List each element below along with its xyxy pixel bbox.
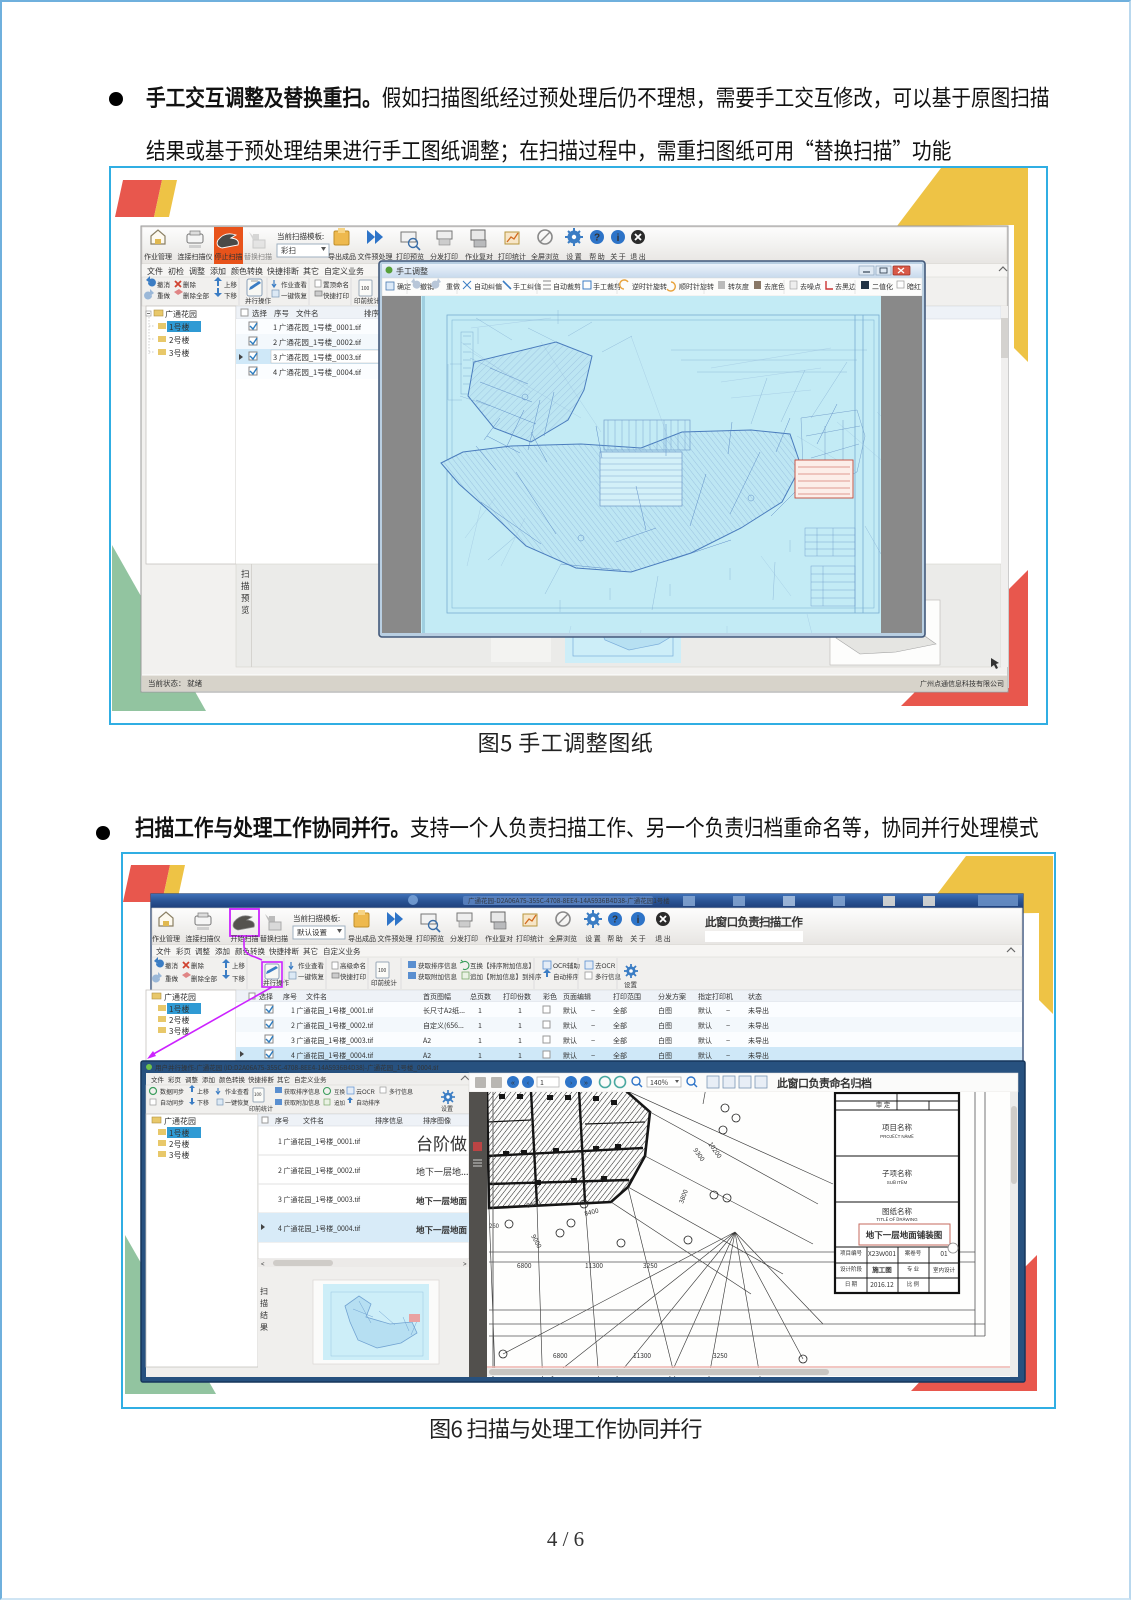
- svg-text:未导出: 未导出: [748, 1006, 769, 1016]
- svg-text:默认: 默认: [563, 1006, 577, 1016]
- svg-text:自动纠偏: 自动纠偏: [474, 282, 502, 292]
- svg-text:1: 1: [540, 1078, 544, 1088]
- svg-text:扫: 扫: [260, 1286, 268, 1297]
- svg-text:当前扫描模板:: 当前扫描模板:: [277, 231, 324, 242]
- svg-text:指定打印机: 指定打印机: [698, 992, 733, 1002]
- svg-text:默认: 默认: [698, 1006, 712, 1016]
- svg-text:A2: A2: [423, 1051, 431, 1061]
- svg-text:2 广通花园_1号楼_0002.tif: 2 广通花园_1号楼_0002.tif: [273, 337, 362, 348]
- svg-text:一键恢复: 一键恢复: [298, 971, 325, 981]
- svg-text:自动同步: 自动同步: [160, 1098, 184, 1107]
- svg-text:导出成品: 导出成品: [348, 934, 376, 944]
- svg-text:其它: 其它: [277, 1074, 290, 1084]
- svg-text:快捷打印: 快捷打印: [323, 290, 349, 300]
- svg-text:导出成品: 导出成品: [328, 252, 356, 262]
- svg-text:1: 1: [478, 1036, 482, 1046]
- svg-text:2号楼: 2号楼: [169, 335, 189, 346]
- svg-text:览: 览: [241, 604, 250, 616]
- svg-text:状态: 状态: [748, 992, 762, 1002]
- svg-text:一键恢复: 一键恢复: [225, 1098, 249, 1107]
- svg-text:果: 果: [260, 1322, 268, 1333]
- svg-text:下移: 下移: [232, 973, 246, 983]
- svg-text:设 置: 设 置: [585, 934, 601, 944]
- svg-text:i: i: [637, 911, 640, 926]
- svg-text:日 期: 日 期: [845, 1280, 858, 1288]
- svg-text:其它: 其它: [303, 946, 318, 957]
- svg-text:3250: 3250: [713, 1350, 728, 1360]
- svg-text:印前统计: 印前统计: [354, 295, 381, 305]
- svg-text:调整: 调整: [189, 266, 205, 277]
- svg-text:连接扫描仪: 连接扫描仪: [178, 252, 213, 262]
- svg-text:长尺寸A2纸...: 长尺寸A2纸...: [423, 1006, 465, 1016]
- svg-text:~: ~: [591, 1006, 595, 1016]
- svg-text:文件名: 文件名: [296, 308, 319, 319]
- svg-text:作业查看: 作业查看: [225, 1087, 249, 1096]
- svg-text:地下一层地面: 地下一层地面: [416, 1224, 468, 1236]
- svg-text:案卷号: 案卷号: [905, 1249, 922, 1257]
- svg-text:项目编号: 项目编号: [840, 1249, 863, 1257]
- svg-text:替换扫描: 替换扫描: [244, 252, 272, 262]
- svg-text:全部: 全部: [613, 1006, 627, 1016]
- svg-text:选择: 选择: [252, 308, 267, 319]
- svg-text:6800: 6800: [517, 1260, 532, 1270]
- svg-text:广州点通信息科技有限公司: 广州点通信息科技有限公司: [920, 679, 1004, 689]
- svg-text:此窗口负责命名归档: 此窗口负责命名归档: [777, 1075, 872, 1091]
- svg-text:确定: 确定: [397, 282, 411, 292]
- svg-text:6800: 6800: [553, 1350, 568, 1360]
- svg-text:11300: 11300: [585, 1260, 603, 1270]
- svg-text:3号楼: 3号楼: [169, 348, 189, 359]
- svg-text:子项名称: 子项名称: [882, 1168, 912, 1179]
- svg-text:上移: 上移: [224, 279, 238, 289]
- svg-text:设置: 设置: [624, 979, 638, 989]
- svg-text:广通花园: 广通花园: [165, 309, 197, 320]
- svg-text:未导出: 未导出: [748, 1051, 769, 1061]
- svg-text:描: 描: [241, 580, 250, 592]
- svg-text:数据同步: 数据同步: [160, 1087, 184, 1096]
- svg-text:施工图: 施工图: [872, 1264, 892, 1274]
- svg-text:文件: 文件: [151, 1074, 165, 1084]
- svg-text:获取附加信息: 获取附加信息: [418, 971, 458, 981]
- svg-text:默认: 默认: [563, 1051, 577, 1061]
- svg-text:重做: 重做: [165, 973, 179, 983]
- svg-text:全部: 全部: [613, 1051, 627, 1061]
- svg-text:重做: 重做: [157, 290, 171, 300]
- svg-text:4 广通花园_1号楼_0004.tif: 4 广通花园_1号楼_0004.tif: [273, 367, 362, 378]
- svg-text:序号: 序号: [283, 992, 297, 1002]
- svg-text:添加: 添加: [215, 946, 230, 957]
- svg-text:用户并行操作-广通花园 (ID:D2A06A75-355C-: 用户并行操作-广通花园 (ID:D2A06A75-355C-4708-8EE4-…: [155, 1062, 438, 1072]
- svg-text:自定义(656...: 自定义(656...: [423, 1021, 464, 1031]
- svg-text:100: 100: [378, 967, 387, 974]
- svg-text:打印份数: 打印份数: [503, 992, 531, 1002]
- svg-text:颜色转换: 颜色转换: [219, 1074, 246, 1084]
- svg-text:未导出: 未导出: [748, 1021, 769, 1031]
- svg-text:~: ~: [591, 1036, 595, 1046]
- svg-text:退 出: 退 出: [655, 934, 671, 944]
- svg-text:100: 100: [254, 1092, 262, 1098]
- svg-text:快捷打印: 快捷打印: [340, 971, 366, 981]
- svg-text:项目名称: 项目名称: [882, 1122, 912, 1133]
- svg-text:页面编辑: 页面编辑: [563, 992, 591, 1002]
- svg-text:文件名: 文件名: [303, 1116, 324, 1126]
- svg-text:互换: 互换: [334, 1088, 346, 1096]
- svg-text:彩页: 彩页: [176, 946, 191, 957]
- svg-text:?: ?: [594, 229, 600, 244]
- svg-text:广通花园: 广通花园: [164, 992, 196, 1003]
- svg-text:高级命名: 高级命名: [340, 960, 366, 970]
- svg-text:顺时针旋转: 顺时针旋转: [679, 282, 714, 292]
- svg-text:停止扫描: 停止扫描: [215, 252, 243, 262]
- svg-text:3 广通花园_1号楼_0003.tif: 3 广通花园_1号楼_0003.tif: [291, 1036, 373, 1046]
- svg-text:地下一层地面: 地下一层地面: [416, 1195, 468, 1207]
- svg-text:1 广通花园_1号楼_0001.tif: 1 广通花园_1号楼_0001.tif: [278, 1137, 360, 1147]
- svg-text:~: ~: [591, 1051, 595, 1061]
- svg-text:结: 结: [260, 1310, 268, 1321]
- svg-text:云OCR: 云OCR: [356, 1087, 375, 1096]
- svg-text:自动排序: 自动排序: [553, 971, 580, 981]
- svg-text:作业管理: 作业管理: [152, 934, 180, 944]
- svg-text:设计阶段: 设计阶段: [840, 1265, 863, 1273]
- svg-text:默认: 默认: [698, 1051, 712, 1061]
- svg-text:互换【排序附加信息】: 互换【排序附加信息】: [470, 960, 535, 970]
- svg-text:自定义业务: 自定义业务: [324, 266, 364, 277]
- svg-text:逆时针旋转: 逆时针旋转: [632, 282, 667, 292]
- svg-text:260: 260: [489, 1221, 500, 1230]
- svg-text:»: »: [584, 1078, 588, 1088]
- svg-text:~: ~: [726, 1051, 730, 1061]
- svg-text:追加【附加信息】到排序: 追加【附加信息】到排序: [470, 971, 542, 981]
- svg-text:彩扫: 彩扫: [281, 245, 296, 256]
- svg-text:X23W001: X23W001: [868, 1248, 896, 1258]
- svg-text:颜色转换: 颜色转换: [231, 266, 263, 277]
- svg-text:删除全部: 删除全部: [191, 973, 218, 983]
- svg-text:4 广通花园_1号楼_0004.tif: 4 广通花园_1号楼_0004.tif: [278, 1224, 360, 1234]
- svg-text:1 广通花园_1号楼_0001.tif: 1 广通花园_1号楼_0001.tif: [291, 1006, 373, 1016]
- svg-text:上移: 上移: [232, 960, 246, 970]
- svg-text:1号楼: 1号楼: [169, 1004, 189, 1015]
- svg-text:首页图幅: 首页图幅: [423, 992, 451, 1002]
- svg-text:删除: 删除: [191, 960, 205, 970]
- svg-text:获取附加信息: 获取附加信息: [284, 1098, 320, 1107]
- svg-text:快捷排断: 快捷排断: [269, 946, 299, 957]
- svg-text:手工调整: 手工调整: [396, 266, 428, 277]
- svg-text:1: 1: [478, 1051, 482, 1061]
- svg-text:3 广通花园_1号楼_0003.tif: 3 广通花园_1号楼_0003.tif: [278, 1195, 360, 1205]
- svg-text:多行信息: 多行信息: [595, 971, 622, 981]
- svg-text:打印范围: 打印范围: [613, 992, 641, 1002]
- svg-text:快捷排断: 快捷排断: [248, 1074, 275, 1084]
- svg-text:文件预处理: 文件预处理: [378, 934, 413, 944]
- svg-text:下移: 下移: [224, 290, 238, 300]
- svg-text:置顶命名: 置顶命名: [323, 279, 349, 289]
- svg-text:地下一层地面铺装图: 地下一层地面铺装图: [866, 1229, 943, 1241]
- svg-text:设置: 设置: [441, 1104, 453, 1113]
- svg-text:白图: 白图: [658, 1051, 672, 1061]
- svg-text:去底色: 去底色: [764, 282, 785, 292]
- svg-text:专 业: 专 业: [907, 1265, 920, 1273]
- svg-text:默认: 默认: [563, 1021, 577, 1031]
- svg-text:图纸名称: 图纸名称: [882, 1206, 912, 1217]
- svg-text:此窗口负责扫描工作: 此窗口负责扫描工作: [705, 914, 803, 930]
- svg-text:转灰度: 转灰度: [728, 282, 749, 292]
- svg-text:彩色: 彩色: [543, 992, 557, 1002]
- svg-text:~: ~: [591, 1021, 595, 1031]
- svg-text:自动排序: 自动排序: [356, 1098, 380, 1107]
- svg-text:当前状态： 就绪: 当前状态： 就绪: [148, 678, 203, 689]
- svg-text:并行操作: 并行操作: [263, 977, 290, 987]
- svg-text:自动裁剪: 自动裁剪: [553, 282, 581, 292]
- svg-text:下移: 下移: [197, 1098, 209, 1107]
- svg-text:打印预览: 打印预览: [416, 934, 444, 944]
- svg-text:扫: 扫: [241, 568, 250, 580]
- svg-text:未导出: 未导出: [748, 1036, 769, 1046]
- svg-text:获取排序信息: 获取排序信息: [418, 960, 458, 970]
- svg-text:获取排序信息: 获取排序信息: [284, 1087, 320, 1096]
- svg-text:作业管理: 作业管理: [144, 252, 172, 262]
- svg-text:总页数: 总页数: [470, 992, 491, 1002]
- svg-text:印前统计: 印前统计: [371, 977, 398, 987]
- svg-text:3250: 3250: [643, 1260, 658, 1270]
- svg-text:‹: ‹: [527, 1078, 529, 1088]
- svg-text:暗红: 暗红: [907, 282, 921, 292]
- svg-text:调整: 调整: [185, 1074, 199, 1084]
- svg-text:添加: 添加: [202, 1074, 215, 1084]
- svg-text:预: 预: [241, 592, 250, 604]
- svg-text:2 广通花园_1号楼_0002.tif: 2 广通花园_1号楼_0002.tif: [278, 1166, 360, 1176]
- svg-text:快捷排断: 快捷排断: [267, 266, 299, 277]
- svg-text:白图: 白图: [658, 1006, 672, 1016]
- svg-text:自定义业务: 自定义业务: [323, 946, 361, 957]
- svg-text:描: 描: [260, 1298, 268, 1309]
- svg-text:1号楼: 1号楼: [169, 322, 189, 333]
- svg-text:默认: 默认: [698, 1036, 712, 1046]
- svg-text:二值化: 二值化: [872, 282, 893, 292]
- svg-text:追加: 追加: [334, 1099, 345, 1107]
- svg-text:3号楼: 3号楼: [169, 1150, 189, 1161]
- svg-text:并行操作: 并行操作: [245, 295, 272, 305]
- svg-text:广通花园: 广通花园: [164, 1116, 196, 1127]
- svg-text:白图: 白图: [658, 1036, 672, 1046]
- svg-text:序号: 序号: [274, 308, 289, 319]
- svg-text:比 例: 比 例: [907, 1280, 920, 1288]
- svg-text:4 广通花园_1号楼_0004.tif: 4 广通花园_1号楼_0004.tif: [291, 1051, 373, 1061]
- svg-text:删除: 删除: [183, 279, 197, 289]
- svg-text:1: 1: [478, 1021, 482, 1031]
- svg-text:重做: 重做: [446, 282, 460, 292]
- svg-text:白图: 白图: [658, 1021, 672, 1031]
- svg-text:3 广通花园_1号楼_0003.tif: 3 广通花园_1号楼_0003.tif: [273, 352, 362, 363]
- svg-text:彩页: 彩页: [168, 1074, 182, 1084]
- svg-text:地下一层地...: 地下一层地...: [416, 1165, 469, 1178]
- svg-text:2号楼: 2号楼: [169, 1015, 189, 1026]
- svg-text:~: ~: [726, 1036, 730, 1046]
- svg-text:审 定: 审 定: [876, 1099, 891, 1109]
- svg-text:默认: 默认: [698, 1021, 712, 1031]
- svg-text:A2: A2: [423, 1036, 431, 1046]
- svg-text:室内设计: 室内设计: [933, 1266, 956, 1274]
- svg-text:全部: 全部: [613, 1021, 627, 1031]
- svg-text:100: 100: [361, 285, 370, 292]
- svg-text:PROJECT NAME: PROJECT NAME: [880, 1134, 914, 1140]
- svg-text:全屏浏览: 全屏浏览: [549, 934, 577, 944]
- svg-text:添加: 添加: [210, 266, 226, 277]
- svg-text:去噪点: 去噪点: [800, 282, 821, 292]
- svg-text:01: 01: [940, 1248, 948, 1258]
- svg-text:一键恢复: 一键恢复: [281, 290, 308, 300]
- svg-text:排序信息: 排序信息: [375, 1116, 403, 1126]
- svg-text:1号楼: 1号楼: [169, 1128, 189, 1139]
- svg-text:印前统计: 印前统计: [249, 1104, 273, 1113]
- svg-text:1 广通花园_1号楼_0001.tif: 1 广通花园_1号楼_0001.tif: [273, 322, 362, 333]
- svg-text:~: ~: [726, 1006, 730, 1016]
- svg-text:撤消: 撤消: [157, 279, 171, 289]
- svg-text:台阶做: 台阶做: [416, 1130, 467, 1155]
- svg-text:去OCR: 去OCR: [595, 960, 616, 970]
- svg-text:~: ~: [726, 1021, 730, 1031]
- svg-text:默认: 默认: [563, 1036, 577, 1046]
- svg-text:作业复对: 作业复对: [485, 934, 513, 944]
- svg-text:«: «: [511, 1078, 515, 1088]
- svg-text:其它: 其它: [303, 266, 319, 277]
- svg-text:2016.12: 2016.12: [870, 1279, 894, 1289]
- svg-text:排序图像: 排序图像: [423, 1116, 451, 1126]
- svg-text:1: 1: [518, 1006, 522, 1016]
- svg-text:关 于: 关 于: [630, 934, 646, 944]
- svg-text:自定义业务: 自定义业务: [294, 1074, 327, 1084]
- svg-text:多行信息: 多行信息: [389, 1087, 413, 1096]
- svg-text:全部: 全部: [613, 1036, 627, 1046]
- svg-text:广通花园-D2A06A75-355C-4708-8EE4-1: 广通花园-D2A06A75-355C-4708-8EE4-14A5936B4D3…: [468, 895, 670, 905]
- svg-text:分发方案: 分发方案: [658, 992, 686, 1002]
- svg-text:默认设置: 默认设置: [297, 927, 327, 938]
- svg-text:作业查看: 作业查看: [298, 960, 325, 970]
- svg-text:1: 1: [518, 1051, 522, 1061]
- svg-text:<: <: [261, 1259, 265, 1268]
- svg-text:去黑边: 去黑边: [835, 282, 856, 292]
- svg-text:>: >: [463, 1259, 467, 1268]
- svg-text:删除全部: 删除全部: [183, 290, 210, 300]
- svg-text:2号楼: 2号楼: [169, 1139, 189, 1150]
- svg-text:11300: 11300: [633, 1350, 651, 1360]
- svg-text:140%: 140%: [650, 1078, 669, 1088]
- svg-text:i: i: [617, 229, 620, 244]
- svg-text:初检: 初检: [168, 266, 184, 277]
- svg-text:2 广通花园_1号楼_0002.tif: 2 广通花园_1号楼_0002.tif: [291, 1021, 373, 1031]
- svg-text:当前扫描模板:: 当前扫描模板:: [293, 913, 340, 924]
- svg-text:1: 1: [518, 1021, 522, 1031]
- svg-text:序号: 序号: [275, 1116, 289, 1126]
- svg-text:分发打印: 分发打印: [450, 934, 478, 944]
- svg-text:1: 1: [478, 1006, 482, 1016]
- svg-text:›: ›: [570, 1078, 572, 1088]
- svg-text:打印统计: 打印统计: [516, 934, 544, 944]
- svg-text:调整: 调整: [195, 946, 210, 957]
- svg-text:文件名: 文件名: [306, 992, 327, 1002]
- svg-text:1: 1: [518, 1036, 522, 1046]
- svg-text:?: ?: [612, 911, 618, 926]
- svg-text:撤消: 撤消: [165, 960, 179, 970]
- svg-text:上移: 上移: [197, 1087, 209, 1096]
- svg-text:帮 助: 帮 助: [607, 934, 623, 944]
- svg-text:文件: 文件: [156, 946, 171, 957]
- svg-text:TITLE OF DRAWING: TITLE OF DRAWING: [876, 1217, 918, 1223]
- svg-text:SUB ITEM: SUB ITEM: [887, 1180, 908, 1186]
- svg-text:连接扫描仪: 连接扫描仪: [186, 934, 221, 944]
- svg-text:文件: 文件: [147, 266, 163, 277]
- svg-text:作业查看: 作业查看: [281, 279, 308, 289]
- svg-text:替换扫描: 替换扫描: [260, 934, 288, 944]
- svg-text:OCR辅助: OCR辅助: [553, 960, 580, 970]
